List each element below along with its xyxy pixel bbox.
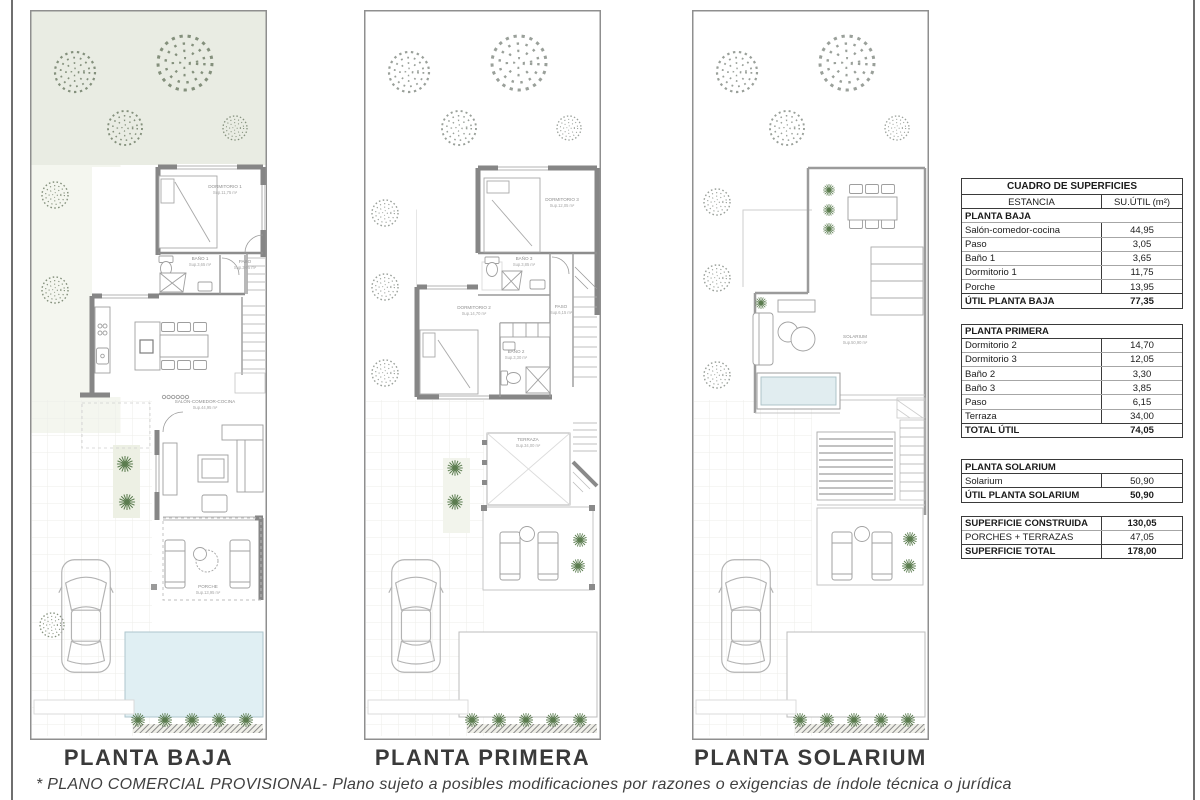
plan-title-primera: PLANTA PRIMERA [364,745,601,771]
row-value: 34,00 [1101,410,1182,423]
section-header-row: PLANTA SOLARIUM [962,460,1182,473]
row-label: Paso [962,238,1101,251]
pool [125,632,263,717]
plan-drawing-planta-solarium: SOLARIUM Sup.50,90 m² [692,10,929,740]
pool-outline [459,632,597,717]
row-value: 13,95 [1101,280,1182,293]
planter-bench [871,247,923,315]
label-paso: PASO [239,259,252,264]
row-label: Dormitorio 1 [962,266,1101,279]
table-block-planta-primera: PLANTA PRIMERA Dormitorio 2 14,70 Dormit… [961,324,1183,439]
table-row: Dormitorio 2 14,70 [962,338,1182,352]
kitchen-island [135,322,160,370]
row-value: 44,95 [1101,223,1182,236]
table-row: PORCHES + TERRAZAS 47,05 [962,530,1182,544]
table-row: Porche 13,95 [962,279,1182,293]
row-label: Terraza [962,410,1101,423]
total-value: 178,00 [1101,545,1182,558]
label-dormitorio3-area: Sup.12,05 m² [550,203,575,208]
row-label: Baño 1 [962,252,1101,265]
label-paso-area: Sup.3,05 m² [234,265,257,270]
label-dormitorio3: DORMITORIO 3 [545,197,579,202]
section-header: PLANTA BAJA [962,209,1182,222]
label-bano3: BAÑO 3 [516,255,533,261]
row-label: Paso [962,395,1101,408]
plan-planta-baja: DORMITORIO 1 Sup.11,75 m² BAÑO 1 Sup.3,6… [30,10,267,740]
label-dormitorio1: DORMITORIO 1 [208,184,242,189]
table-row: Baño 2 3,30 [962,366,1182,380]
row-value: 12,05 [1101,353,1182,366]
bed-dormitorio2 [420,330,478,394]
row-value: 130,05 [1101,517,1182,530]
table-row: Solarium 50,90 [962,473,1182,487]
wardrobe [500,323,550,337]
entry-slab [34,700,134,714]
kitchen-counter [95,307,110,373]
total-value: 50,90 [1102,488,1182,501]
section-header-row: PLANTA BAJA [962,208,1182,222]
total-label: ÚTIL PLANTA SOLARIUM [962,488,1102,501]
table-row: Baño 3 3,85 [962,380,1182,394]
row-label: Baño 3 [962,381,1101,394]
row-value: 3,30 [1101,367,1182,380]
page-frame-right [1193,0,1195,800]
table-row: Paso 6,15 [962,394,1182,408]
row-label: Solarium [962,474,1101,487]
page-frame-left [11,0,13,800]
table-row: Terraza 34,00 [962,409,1182,423]
entry-slab [696,700,796,714]
row-value: 50,90 [1101,474,1182,487]
footer-disclaimer: * PLANO COMERCIAL PROVISIONAL- Plano suj… [36,776,1012,794]
table-block-summary: SUPERFICIE CONSTRUIDA 130,05 PORCHES + T… [961,516,1183,560]
label-terraza: TERRAZA [517,437,539,442]
total-label: SUPERFICIE TOTAL [962,545,1101,558]
room-labels: SOLARIUM Sup.50,90 m² [843,334,868,345]
dining-table [848,185,897,229]
total-row: SUPERFICIE TOTAL 178,00 [962,544,1182,558]
surface-table: CUADRO DE SUPERFICIES ESTANCIA SU.ÚTIL (… [961,178,1183,559]
row-label: Baño 2 [962,367,1101,380]
label-porche: PORCHE [198,584,218,589]
row-label: Porche [962,280,1101,293]
table-row: Baño 1 3,65 [962,251,1182,265]
label-terraza-area: Sup.34,00 m² [516,443,541,448]
label-salon-area: Sup.44,95 m² [193,405,218,410]
label-bano1: BAÑO 1 [192,255,209,261]
table-header-row: ESTANCIA SU.ÚTIL (m²) [962,194,1182,208]
garden-area [32,12,266,166]
label-solarium: SOLARIUM [843,334,867,339]
total-value: 77,35 [1102,294,1182,307]
row-value: 3,85 [1101,381,1182,394]
table-row: Paso 3,05 [962,237,1182,251]
total-label: ÚTIL PLANTA BAJA [962,294,1102,307]
table-block-planta-solarium: PLANTA SOLARIUM Solarium 50,90 ÚTIL PLAN… [961,459,1183,503]
row-label: Dormitorio 3 [962,353,1101,366]
plan-planta-solarium: SOLARIUM Sup.50,90 m² [692,10,929,740]
label-bano2: BAÑO 2 [508,348,525,354]
total-row: ÚTIL PLANTA SOLARIUM 50,90 [962,487,1182,501]
row-label: SUPERFICIE CONSTRUIDA [962,517,1101,530]
label-solarium-area: Sup.50,90 m² [843,340,868,345]
table-row: Dormitorio 1 11,75 [962,265,1182,279]
table-row: Salón-comedor-cocina 44,95 [962,222,1182,236]
row-value: 14,70 [1101,339,1182,352]
row-label: Salón-comedor-cocina [962,223,1101,236]
row-value: 3,05 [1101,238,1182,251]
plan-title-solarium: PLANTA SOLARIUM [692,745,929,771]
plan-drawing-planta-baja: DORMITORIO 1 Sup.11,75 m² BAÑO 1 Sup.3,6… [30,10,267,740]
label-paso2: PASO [555,304,568,309]
table-row: SUPERFICIE CONSTRUIDA 130,05 [962,517,1182,530]
section-header: PLANTA PRIMERA [962,325,1182,338]
entry-slab [368,700,468,714]
palm-sofa [755,297,767,309]
section-header: PLANTA SOLARIUM [962,460,1182,473]
label-porche-area: Sup.13,95 m² [196,590,221,595]
plan-drawing-planta-primera: DORMITORIO 3 Sup.12,05 m² BAÑO 3 Sup.3,8… [364,10,601,740]
row-label: PORCHES + TERRAZAS [962,531,1101,544]
label-dormitorio2: DORMITORIO 2 [457,305,491,310]
table-row: Dormitorio 3 12,05 [962,352,1182,366]
total-row: TOTAL ÚTIL 74,05 [962,423,1182,437]
label-bano1-area: Sup.3,65 m² [189,262,212,267]
bed-dormitorio3 [484,178,540,252]
label-dormitorio2-area: Sup.14,70 m² [462,311,487,316]
pillar-marker [151,584,157,590]
table-title-row: CUADRO DE SUPERFICIES [962,179,1182,194]
table-title: CUADRO DE SUPERFICIES [962,179,1182,194]
pool-outline [787,632,925,717]
col-estancia: ESTANCIA [962,195,1101,208]
plan-planta-primera: DORMITORIO 3 Sup.12,05 m² BAÑO 3 Sup.3,8… [364,10,601,740]
total-row: ÚTIL PLANTA BAJA 77,35 [962,293,1182,307]
label-salon: SALÓN-COMEDOR-COCINA [175,398,236,404]
label-dormitorio1-area: Sup.11,75 m² [213,190,238,195]
total-value: 74,05 [1102,424,1182,437]
row-label: Dormitorio 2 [962,339,1101,352]
label-bano2-area: Sup.3,30 m² [505,355,528,360]
label-bano3-area: Sup.3,85 m² [513,262,536,267]
row-value: 3,65 [1101,252,1182,265]
plan-title-baja: PLANTA BAJA [30,745,267,771]
table-block-planta-baja: CUADRO DE SUPERFICIES ESTANCIA SU.ÚTIL (… [961,178,1183,309]
row-value: 47,05 [1101,531,1182,544]
section-header-row: PLANTA PRIMERA [962,325,1182,338]
dining-table [160,323,208,370]
col-surface: SU.ÚTIL (m²) [1101,195,1182,208]
row-value: 6,15 [1101,395,1182,408]
row-value: 11,75 [1101,266,1182,279]
total-label: TOTAL ÚTIL [962,424,1102,437]
jacuzzi [757,373,840,409]
label-paso2-area: Sup.6,15 m² [550,310,573,315]
